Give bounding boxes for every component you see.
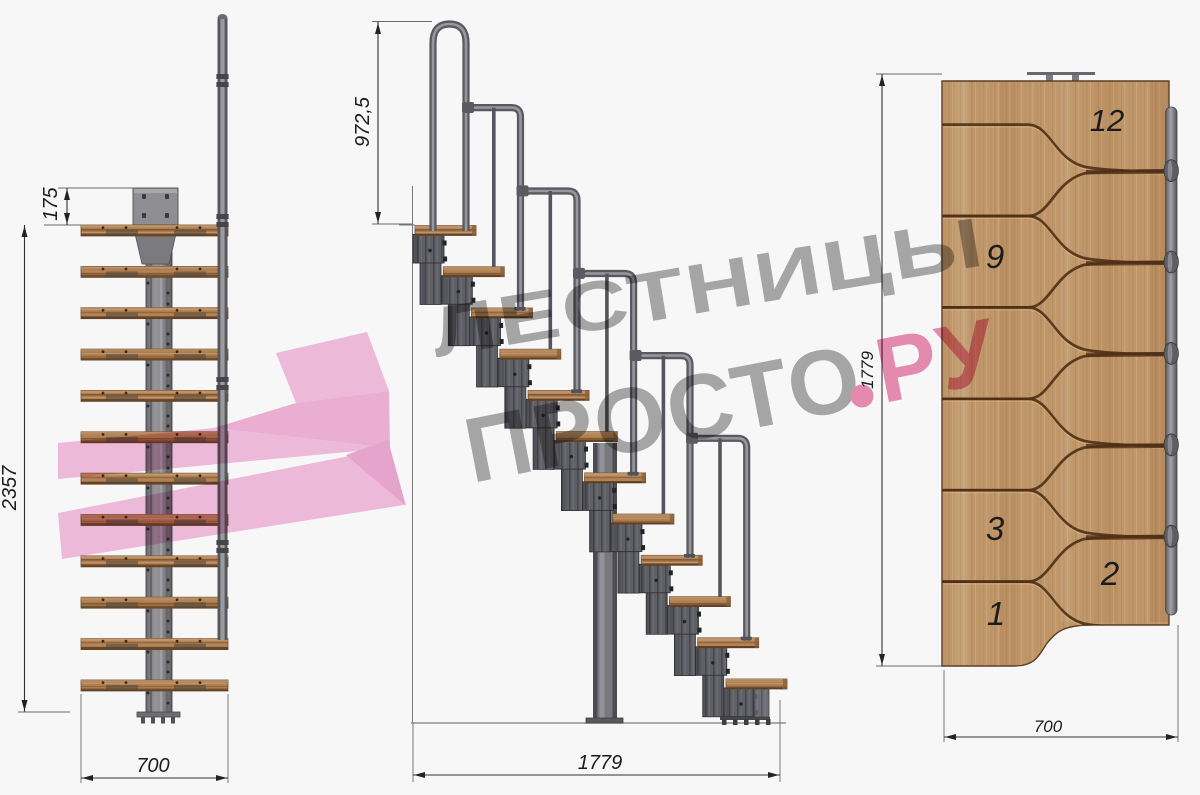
svg-text:972,5: 972,5: [352, 96, 374, 147]
svg-text:175: 175: [40, 186, 62, 220]
svg-text:1: 1: [987, 595, 1005, 632]
svg-text:2: 2: [1100, 555, 1119, 592]
svg-text:12: 12: [1090, 103, 1124, 138]
svg-text:700: 700: [1034, 717, 1063, 736]
svg-text:2357: 2357: [0, 465, 21, 511]
svg-text:3: 3: [986, 510, 1005, 547]
svg-text:700: 700: [136, 755, 169, 777]
svg-text:1779: 1779: [578, 752, 623, 774]
